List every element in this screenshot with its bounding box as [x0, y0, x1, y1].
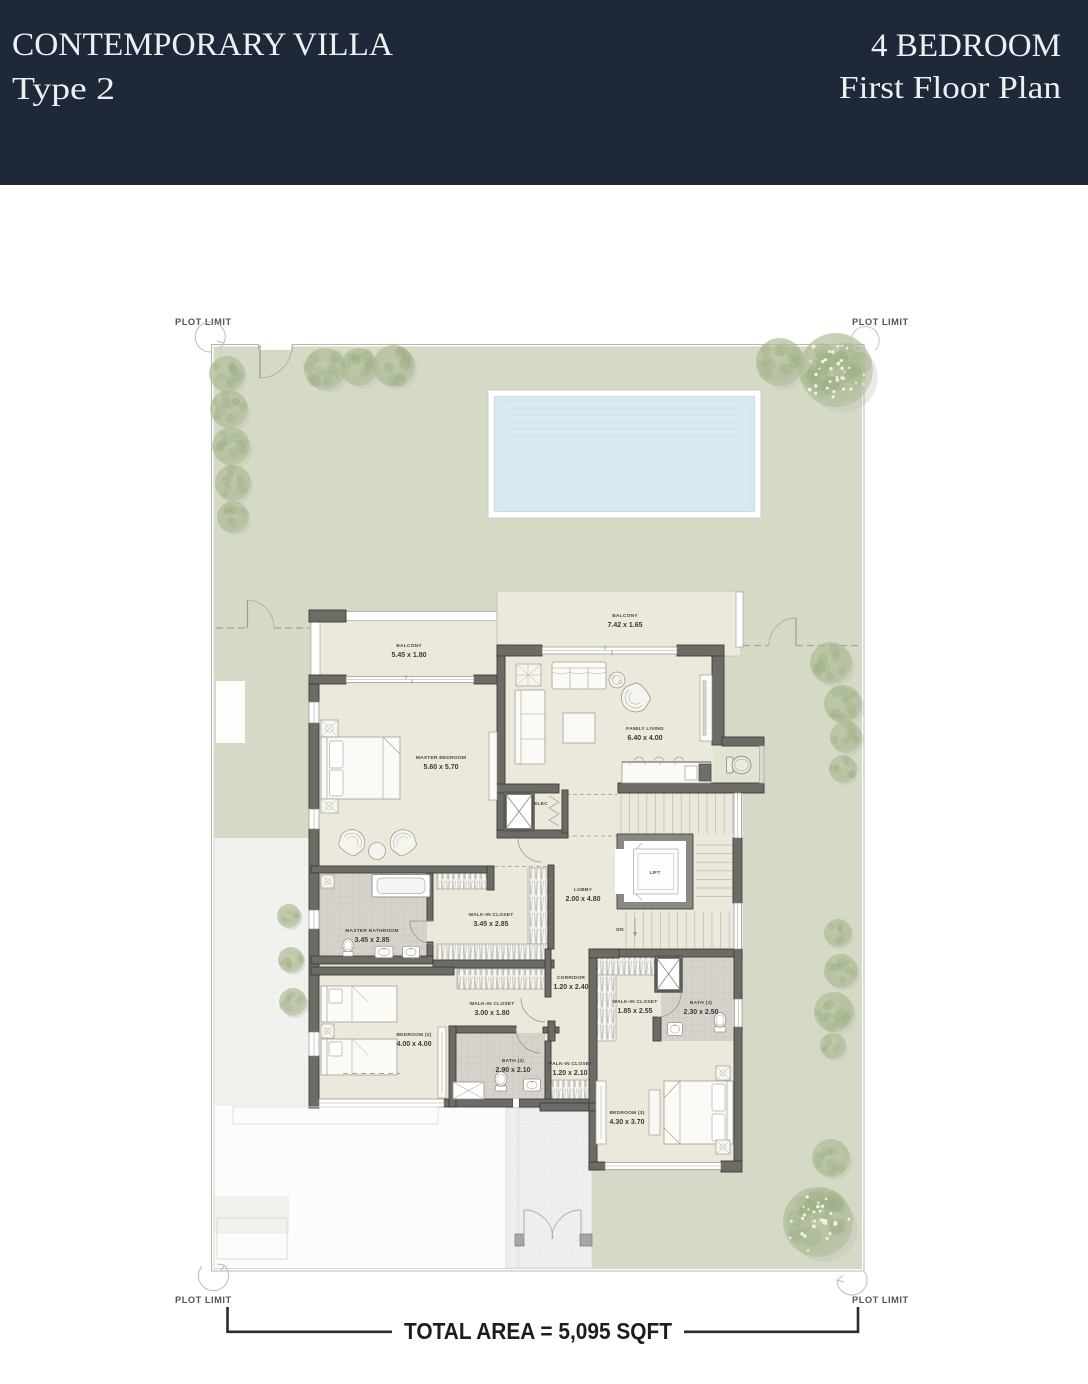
svg-text:PLOT LIMIT: PLOT LIMIT — [175, 317, 232, 327]
svg-text:PLOT LIMIT: PLOT LIMIT — [175, 1295, 232, 1305]
svg-text:4.00 x 4.00: 4.00 x 4.00 — [396, 1041, 431, 1048]
svg-text:CONTEMPORARY VILLA: CONTEMPORARY VILLA — [12, 27, 393, 63]
svg-text:BATH (3): BATH (3) — [690, 1000, 712, 1006]
svg-text:WALK-IN CLOSET: WALK-IN CLOSET — [548, 1061, 593, 1067]
svg-text:1.20 x 2.40: 1.20 x 2.40 — [553, 984, 588, 991]
svg-text:PLOT LIMIT: PLOT LIMIT — [852, 1295, 909, 1305]
svg-text:7.42 x 1.65: 7.42 x 1.65 — [607, 622, 642, 629]
svg-text:BEDROOM (2): BEDROOM (2) — [396, 1032, 431, 1038]
svg-text:PLOT LIMIT: PLOT LIMIT — [852, 317, 909, 327]
svg-text:BALCONY: BALCONY — [396, 643, 422, 649]
svg-text:6.40 x 4.00: 6.40 x 4.00 — [627, 735, 662, 742]
svg-text:4 BEDROOM: 4 BEDROOM — [871, 28, 1061, 64]
svg-text:BATH (2): BATH (2) — [502, 1058, 524, 1064]
svg-text:1.85 x 2.55: 1.85 x 2.55 — [617, 1008, 652, 1015]
svg-text:WALK-IN CLOSET: WALK-IN CLOSET — [469, 912, 514, 918]
svg-text:CORRIDOR: CORRIDOR — [557, 975, 585, 981]
svg-text:BALCONY: BALCONY — [612, 613, 638, 619]
svg-text:MASTER BATHROOM: MASTER BATHROOM — [345, 928, 398, 934]
svg-text:4.30 x 3.70: 4.30 x 3.70 — [609, 1119, 644, 1126]
svg-text:3.00 x 1.80: 3.00 x 1.80 — [474, 1010, 509, 1017]
svg-text:1.20 x 2.10: 1.20 x 2.10 — [552, 1070, 587, 1077]
svg-text:2.30 x 2.50: 2.30 x 2.50 — [683, 1009, 718, 1016]
svg-text:LOBBY: LOBBY — [574, 887, 593, 893]
svg-text:TOTAL AREA = 5,095 SQFT: TOTAL AREA = 5,095 SQFT — [404, 1318, 672, 1344]
svg-text:DN: DN — [616, 927, 624, 933]
svg-text:MASTER BEDROOM: MASTER BEDROOM — [416, 755, 466, 761]
svg-text:BEDROOM (3): BEDROOM (3) — [609, 1110, 644, 1116]
svg-text:3.45 x 2.85: 3.45 x 2.85 — [354, 937, 389, 944]
svg-text:FAMILY LIVING: FAMILY LIVING — [626, 726, 664, 732]
svg-text:5.60 x 5.70: 5.60 x 5.70 — [423, 764, 458, 771]
svg-text:WALK-IN CLOSET: WALK-IN CLOSET — [470, 1001, 515, 1007]
svg-text:ELEC: ELEC — [534, 801, 548, 807]
svg-text:2.90 x 2.10: 2.90 x 2.10 — [495, 1067, 530, 1074]
svg-text:Type 2: Type 2 — [12, 70, 115, 106]
svg-text:LIFT: LIFT — [649, 870, 660, 876]
svg-text:First Floor Plan: First Floor Plan — [839, 69, 1061, 105]
svg-text:WALK-IN CLOSET: WALK-IN CLOSET — [613, 999, 658, 1005]
svg-text:5.45 x 1.80: 5.45 x 1.80 — [391, 652, 426, 659]
svg-text:3.45 x 2.85: 3.45 x 2.85 — [473, 921, 508, 928]
svg-text:2.00 x 4.80: 2.00 x 4.80 — [565, 896, 600, 903]
